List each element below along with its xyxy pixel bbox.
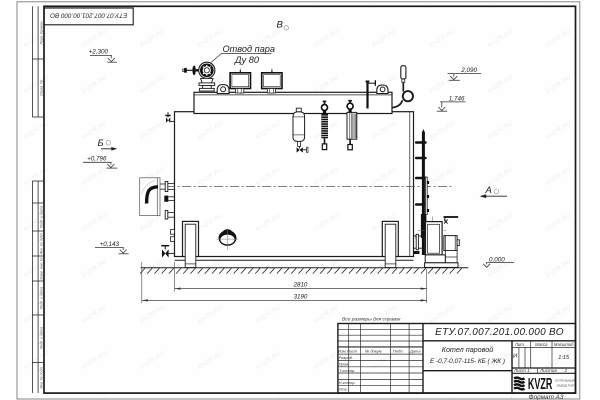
svg-text:Изм Лист: Изм Лист bbox=[338, 349, 357, 354]
svg-text:Взам. инв. №: Взам. инв. № bbox=[40, 257, 44, 279]
svg-text:Разраб.: Разраб. bbox=[339, 355, 353, 360]
svg-text:1,746: 1,746 bbox=[449, 95, 465, 102]
svg-text:Все размеры для справок: Все размеры для справок bbox=[342, 316, 401, 322]
svg-text:В: В bbox=[277, 20, 284, 31]
svg-text:Инв. № подл.: Инв. № подл. bbox=[40, 366, 44, 388]
svg-text:+2,300: +2,300 bbox=[89, 48, 109, 55]
svg-text:Масштаб: Масштаб bbox=[554, 342, 574, 347]
svg-text:Формат А3: Формат А3 bbox=[529, 394, 564, 400]
svg-text:0,000: 0,000 bbox=[489, 256, 505, 263]
svg-text:Перв. примен.: Перв. примен. bbox=[40, 21, 44, 45]
svg-text:ЕТУ.07.007.201.00.000 ВО: ЕТУ.07.007.201.00.000 ВО bbox=[50, 12, 127, 19]
svg-text:Листов: Листов bbox=[539, 368, 557, 373]
svg-text:Лит.: Лит. bbox=[514, 342, 525, 347]
svg-text:Б: Б bbox=[98, 138, 104, 149]
svg-text:Отвод пара: Отвод пара bbox=[223, 44, 276, 54]
svg-text:Н.контр.: Н.контр. bbox=[339, 380, 356, 385]
svg-text:Пров.: Пров. bbox=[339, 362, 350, 367]
svg-text:+0,143: +0,143 bbox=[100, 241, 120, 248]
svg-text:Ду 80: Ду 80 bbox=[234, 55, 260, 65]
svg-text:2810: 2810 bbox=[293, 282, 308, 289]
svg-text:Подп.: Подп. bbox=[393, 349, 404, 354]
svg-text:Подп. и дата: Подп. и дата bbox=[40, 327, 44, 350]
svg-text:А: А bbox=[485, 185, 492, 196]
svg-text:ЕТУ.07.007.201.00.000 ВО: ЕТУ.07.007.201.00.000 ВО bbox=[435, 327, 564, 338]
svg-text:№ докум.: № докум. bbox=[365, 349, 383, 354]
svg-text:Подп. и дата: Подп. и дата bbox=[40, 206, 44, 229]
svg-text:Справ. №: Справ. № bbox=[40, 80, 44, 96]
svg-text:Утв.: Утв. bbox=[339, 386, 348, 391]
svg-text:Т.контр.: Т.контр. bbox=[339, 368, 355, 373]
svg-text:Масса: Масса bbox=[535, 342, 548, 347]
svg-text:Дата: Дата bbox=[409, 349, 421, 354]
svg-text:2,090: 2,090 bbox=[460, 67, 477, 74]
svg-text:Лист 1: Лист 1 bbox=[513, 368, 530, 373]
svg-text:Инв. № дубл.: Инв. № дубл. bbox=[40, 232, 44, 254]
svg-text:Е -0,7-0,07-115- КБ ( ЖК ): Е -0,7-0,07-115- КБ ( ЖК ) bbox=[430, 358, 505, 365]
svg-text:2: 2 bbox=[564, 368, 568, 373]
svg-text:КОТЕЛЬНЫЙ: КОТЕЛЬНЫЙ bbox=[555, 379, 575, 383]
svg-text:Подп. и дата: Подп. и дата bbox=[40, 287, 44, 310]
svg-text:KVZR: KVZR bbox=[528, 376, 553, 393]
svg-text:1:15: 1:15 bbox=[558, 355, 570, 361]
svg-text:Котел паровой: Котел паровой bbox=[442, 345, 494, 354]
svg-text:+0,796: +0,796 bbox=[87, 156, 107, 163]
svg-text:3190: 3190 bbox=[294, 293, 308, 300]
svg-text:ЗАВОД РЭП: ЗАВОД РЭП bbox=[557, 384, 576, 388]
